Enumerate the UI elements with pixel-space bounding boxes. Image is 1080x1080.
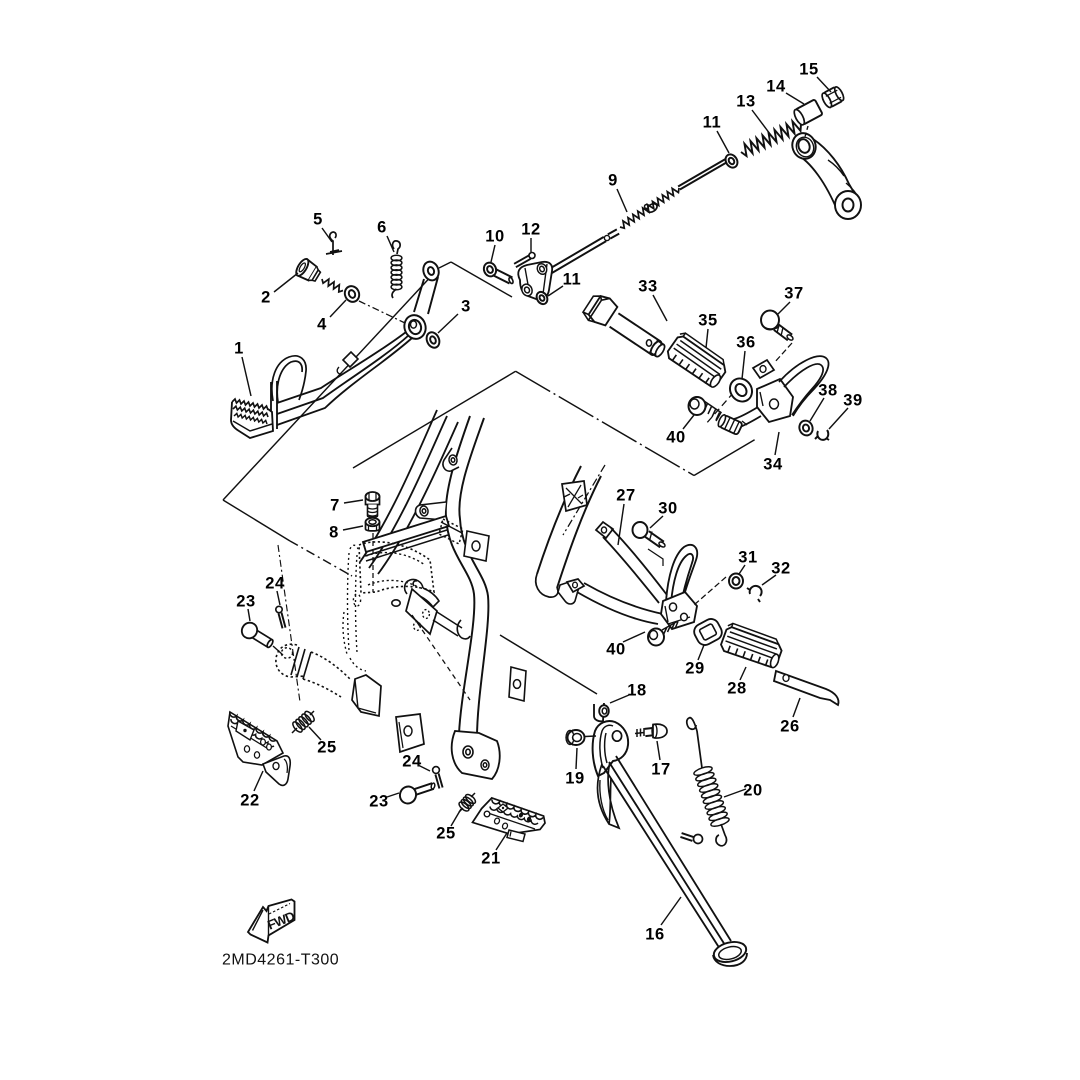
svg-text:21: 21 <box>481 850 501 868</box>
svg-text:13: 13 <box>736 93 756 111</box>
svg-text:4: 4 <box>317 316 327 334</box>
svg-text:6: 6 <box>377 219 387 237</box>
svg-text:25: 25 <box>317 739 337 757</box>
svg-text:23: 23 <box>369 793 389 811</box>
svg-text:5: 5 <box>313 211 323 229</box>
svg-text:28: 28 <box>727 680 747 698</box>
svg-text:3: 3 <box>461 298 471 316</box>
svg-text:34: 34 <box>763 456 783 474</box>
svg-text:2: 2 <box>261 289 271 307</box>
svg-text:24: 24 <box>265 575 285 593</box>
svg-text:40: 40 <box>666 429 686 447</box>
svg-text:40: 40 <box>606 641 626 659</box>
svg-text:27: 27 <box>616 487 636 505</box>
svg-text:1: 1 <box>234 340 244 358</box>
svg-text:36: 36 <box>736 334 756 352</box>
svg-text:19: 19 <box>565 770 585 788</box>
svg-text:23: 23 <box>236 593 256 611</box>
svg-text:7: 7 <box>330 497 340 515</box>
svg-text:37: 37 <box>784 285 804 303</box>
svg-text:17: 17 <box>651 761 671 779</box>
svg-text:29: 29 <box>685 660 705 678</box>
svg-text:22: 22 <box>240 792 260 810</box>
svg-text:14: 14 <box>766 78 786 96</box>
svg-text:26: 26 <box>780 718 800 736</box>
svg-text:11: 11 <box>563 271 582 289</box>
svg-text:2MD4261-T300: 2MD4261-T300 <box>222 952 339 969</box>
svg-text:35: 35 <box>698 312 718 330</box>
svg-text:20: 20 <box>743 782 763 800</box>
svg-text:30: 30 <box>658 500 678 518</box>
svg-text:8: 8 <box>329 524 339 542</box>
svg-text:38: 38 <box>818 382 838 400</box>
svg-text:31: 31 <box>738 549 758 567</box>
svg-text:32: 32 <box>771 560 791 578</box>
svg-text:9: 9 <box>608 172 618 190</box>
svg-text:18: 18 <box>627 682 647 700</box>
svg-text:39: 39 <box>843 392 863 410</box>
svg-text:11: 11 <box>703 114 722 132</box>
svg-text:12: 12 <box>521 221 541 239</box>
svg-text:15: 15 <box>799 61 819 79</box>
svg-text:33: 33 <box>638 278 658 296</box>
svg-text:24: 24 <box>402 753 422 771</box>
svg-text:10: 10 <box>485 228 505 246</box>
svg-text:16: 16 <box>645 926 665 944</box>
svg-text:25: 25 <box>436 825 456 843</box>
